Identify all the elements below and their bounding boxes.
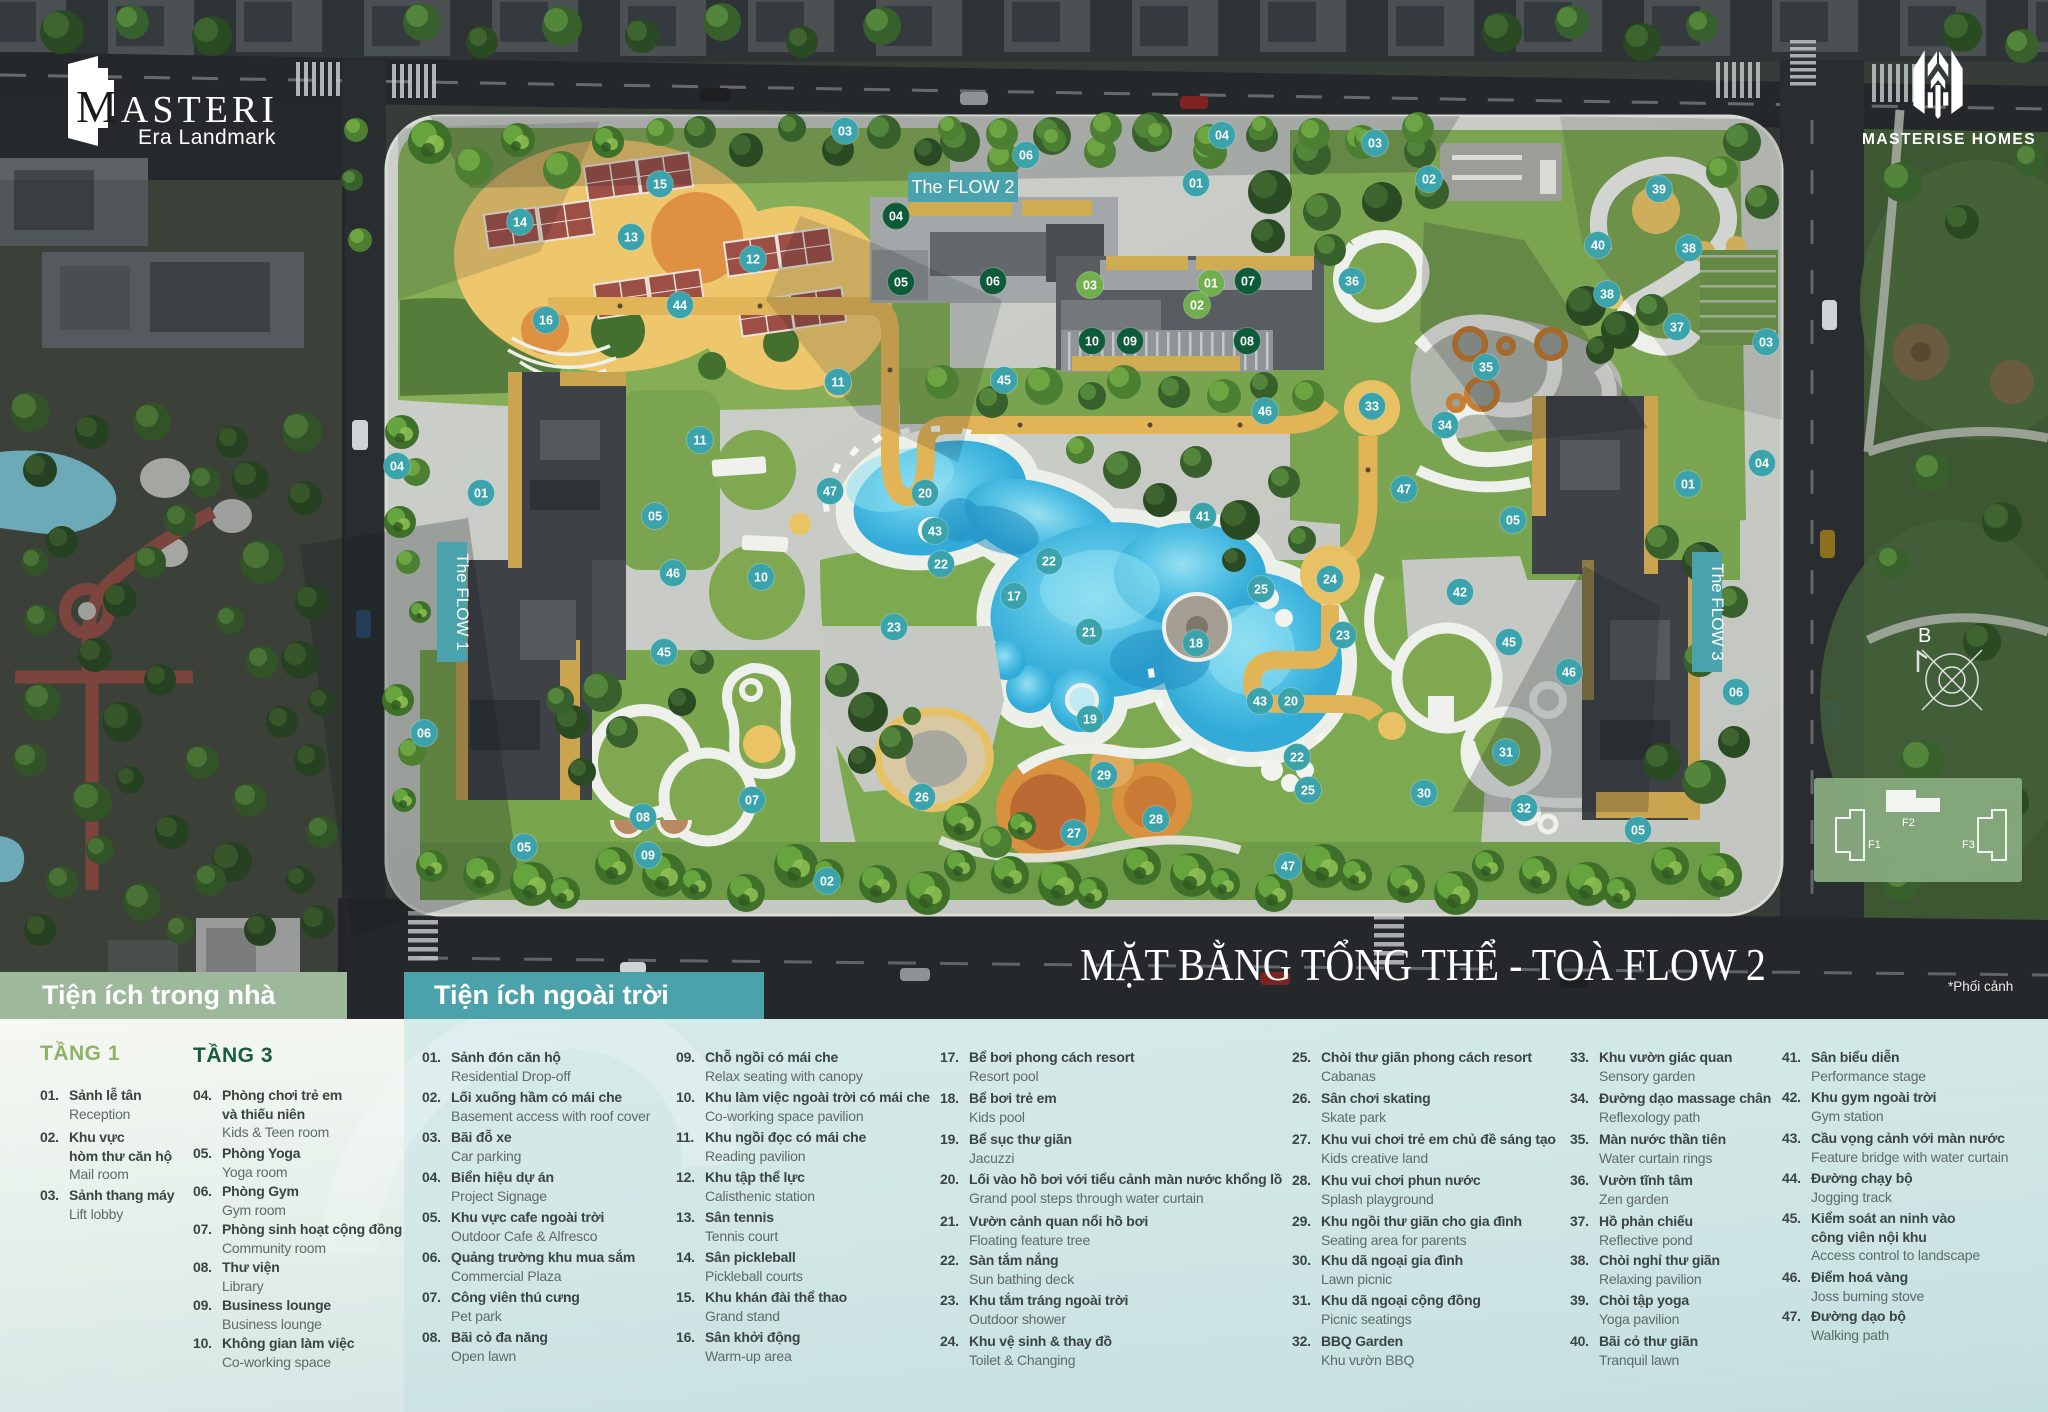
svg-text:B: B	[1918, 625, 1931, 647]
svg-text:20: 20	[918, 487, 932, 501]
svg-text:10: 10	[754, 571, 768, 585]
svg-text:26: 26	[915, 791, 929, 805]
svg-text:47: 47	[1281, 860, 1295, 874]
svg-text:45: 45	[1502, 636, 1516, 650]
svg-text:09: 09	[1123, 335, 1137, 349]
svg-text:The FLOW 2: The FLOW 2	[911, 177, 1014, 197]
svg-text:01: 01	[474, 487, 488, 501]
svg-text:23: 23	[1336, 629, 1350, 643]
svg-text:01: 01	[1189, 177, 1203, 191]
svg-text:14: 14	[513, 216, 527, 230]
svg-text:46: 46	[1258, 405, 1272, 419]
svg-text:41: 41	[1196, 510, 1210, 524]
svg-text:*Phối cảnh: *Phối cảnh	[1948, 979, 2013, 994]
svg-text:45: 45	[997, 374, 1011, 388]
svg-text:05: 05	[1506, 514, 1520, 528]
svg-text:43: 43	[928, 525, 942, 539]
svg-text:01: 01	[1681, 478, 1695, 492]
svg-text:02: 02	[1190, 299, 1204, 313]
svg-text:11: 11	[693, 434, 706, 448]
svg-text:25: 25	[1301, 784, 1315, 798]
svg-text:09: 09	[641, 849, 655, 863]
svg-text:46: 46	[1562, 666, 1576, 680]
svg-text:34: 34	[1438, 419, 1452, 433]
svg-text:03: 03	[1759, 336, 1773, 350]
svg-text:03: 03	[1083, 279, 1097, 293]
svg-text:04: 04	[390, 460, 404, 474]
svg-text:15: 15	[653, 178, 667, 192]
svg-text:25: 25	[1254, 583, 1268, 597]
svg-text:03: 03	[838, 125, 852, 139]
svg-text:05: 05	[648, 510, 662, 524]
svg-text:28: 28	[1149, 813, 1163, 827]
svg-text:38: 38	[1682, 242, 1696, 256]
svg-text:44: 44	[673, 299, 687, 313]
svg-text:11: 11	[831, 376, 844, 390]
svg-text:47: 47	[823, 485, 837, 499]
svg-text:29: 29	[1097, 769, 1111, 783]
svg-text:30: 30	[1417, 787, 1431, 801]
svg-text:04: 04	[889, 210, 903, 224]
svg-text:46: 46	[666, 567, 680, 581]
svg-text:06: 06	[986, 275, 1000, 289]
svg-text:17: 17	[1007, 590, 1021, 604]
svg-text:38: 38	[1600, 288, 1614, 302]
svg-text:10: 10	[1085, 335, 1099, 349]
svg-text:02: 02	[820, 875, 834, 889]
svg-text:02: 02	[1422, 173, 1436, 187]
svg-text:40: 40	[1591, 239, 1605, 253]
svg-text:37: 37	[1670, 321, 1684, 335]
svg-text:F1: F1	[1868, 839, 1881, 851]
svg-text:20: 20	[1284, 695, 1298, 709]
svg-text:08: 08	[636, 811, 650, 825]
svg-text:13: 13	[624, 231, 638, 245]
svg-text:03: 03	[1368, 137, 1382, 151]
svg-text:47: 47	[1397, 483, 1411, 497]
svg-text:04: 04	[1755, 457, 1769, 471]
svg-text:45: 45	[657, 646, 671, 660]
svg-text:33: 33	[1365, 400, 1379, 414]
svg-text:18: 18	[1189, 637, 1203, 651]
svg-text:07: 07	[1241, 275, 1255, 289]
svg-text:12: 12	[746, 253, 760, 267]
svg-text:07: 07	[745, 794, 759, 808]
svg-text:36: 36	[1345, 275, 1359, 289]
svg-text:23: 23	[887, 621, 901, 635]
svg-text:32: 32	[1517, 802, 1531, 816]
svg-text:05: 05	[1631, 824, 1645, 838]
svg-text:35: 35	[1479, 361, 1493, 375]
svg-text:21: 21	[1082, 626, 1096, 640]
svg-text:31: 31	[1499, 746, 1513, 760]
svg-text:01: 01	[1204, 277, 1218, 291]
svg-text:39: 39	[1652, 183, 1666, 197]
svg-text:22: 22	[934, 558, 948, 572]
svg-text:04: 04	[1215, 129, 1229, 143]
svg-text:06: 06	[417, 727, 431, 741]
svg-text:F2: F2	[1902, 817, 1915, 829]
svg-text:22: 22	[1290, 751, 1304, 765]
svg-text:27: 27	[1067, 827, 1081, 841]
svg-text:05: 05	[517, 841, 531, 855]
svg-text:The FLOW 3: The FLOW 3	[1708, 563, 1727, 660]
svg-text:The FLOW 1: The FLOW 1	[453, 553, 472, 650]
svg-text:16: 16	[539, 314, 553, 328]
svg-text:22: 22	[1042, 555, 1056, 569]
svg-text:24: 24	[1323, 573, 1337, 587]
svg-text:F3: F3	[1962, 839, 1975, 851]
svg-text:08: 08	[1240, 335, 1254, 349]
svg-text:06: 06	[1729, 686, 1743, 700]
svg-text:42: 42	[1453, 586, 1467, 600]
svg-text:19: 19	[1083, 713, 1097, 727]
svg-text:43: 43	[1253, 695, 1267, 709]
svg-text:06: 06	[1019, 149, 1033, 163]
svg-text:05: 05	[894, 276, 908, 290]
